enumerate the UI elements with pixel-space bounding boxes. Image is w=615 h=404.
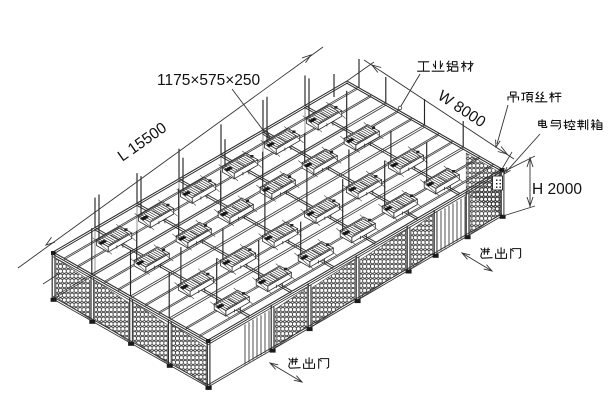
svg-text:1175×575×250: 1175×575×250 — [157, 72, 261, 89]
svg-text:H 2000: H 2000 — [532, 181, 582, 198]
